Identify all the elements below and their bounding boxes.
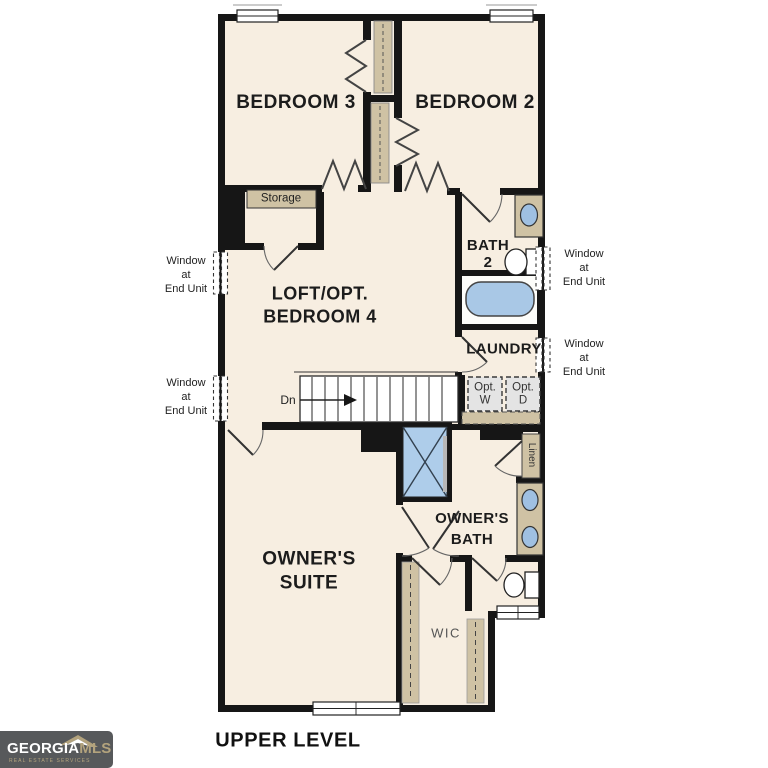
owners-suite-label: OWNER'S SUITE (262, 547, 356, 595)
owners-bath-sink-1 (522, 490, 538, 511)
linen-label: Linen (525, 443, 537, 467)
level-title: UPPER LEVEL (215, 730, 361, 753)
bath2-vanity (515, 195, 543, 237)
owners-bath-sink-2 (522, 527, 538, 548)
opt-washer-label: Opt. W (474, 381, 496, 406)
window-note-left-upper: Window at End Unit (165, 255, 207, 297)
wic-shelf-left (402, 562, 419, 703)
window-top-right (486, 5, 537, 22)
bedroom3-label: BEDROOM 3 (236, 92, 356, 114)
bedroom2-closet-shelf (371, 103, 389, 183)
owners-bath-label: OWNER'S BATH (435, 508, 509, 550)
bath2-label: BATH 2 (467, 237, 509, 272)
floor-plan-drawing (0, 0, 768, 768)
logo-brand-mls: MLS (79, 740, 111, 757)
storage-label: Storage (261, 192, 301, 205)
bath2-sink (521, 204, 538, 226)
laundry-counter (462, 412, 540, 424)
window-owners-suite-bottom (313, 702, 400, 715)
georgia-mls-logo: GEORGIAMLS REAL ESTATE SERVICES (0, 731, 113, 768)
bath2-tub (455, 270, 545, 330)
bedroom3-closet-shelf (374, 21, 392, 93)
wic-label: WIC (431, 627, 461, 642)
logo-tagline: REAL ESTATE SERVICES (9, 758, 91, 764)
owners-bath-shower (398, 422, 452, 502)
loft-label: LOFT/OPT. BEDROOM 4 (263, 283, 377, 330)
window-note-right-middle: Window at End Unit (563, 338, 605, 380)
bedroom2-label: BEDROOM 2 (415, 92, 535, 114)
staircase (294, 372, 458, 422)
logo-brand: GEORGIAMLS (7, 740, 112, 757)
owners-bath-vanity (517, 483, 543, 555)
laundry-label: LAUNDRY (466, 340, 542, 357)
window-toilet-room (497, 606, 539, 619)
opt-dryer-label: Opt. D (512, 381, 534, 406)
window-note-left-lower: Window at End Unit (165, 377, 207, 419)
window-note-right-upper: Window at End Unit (563, 248, 605, 290)
window-top-left (233, 5, 282, 22)
logo-brand-georgia: GEORGIA (7, 740, 79, 757)
wic-shelf-right (467, 619, 484, 703)
stairs-down-label: Dn (280, 394, 295, 408)
floor-plan-page: BEDROOM 3 BEDROOM 2 LOFT/OPT. BEDROOM 4 … (0, 0, 768, 768)
